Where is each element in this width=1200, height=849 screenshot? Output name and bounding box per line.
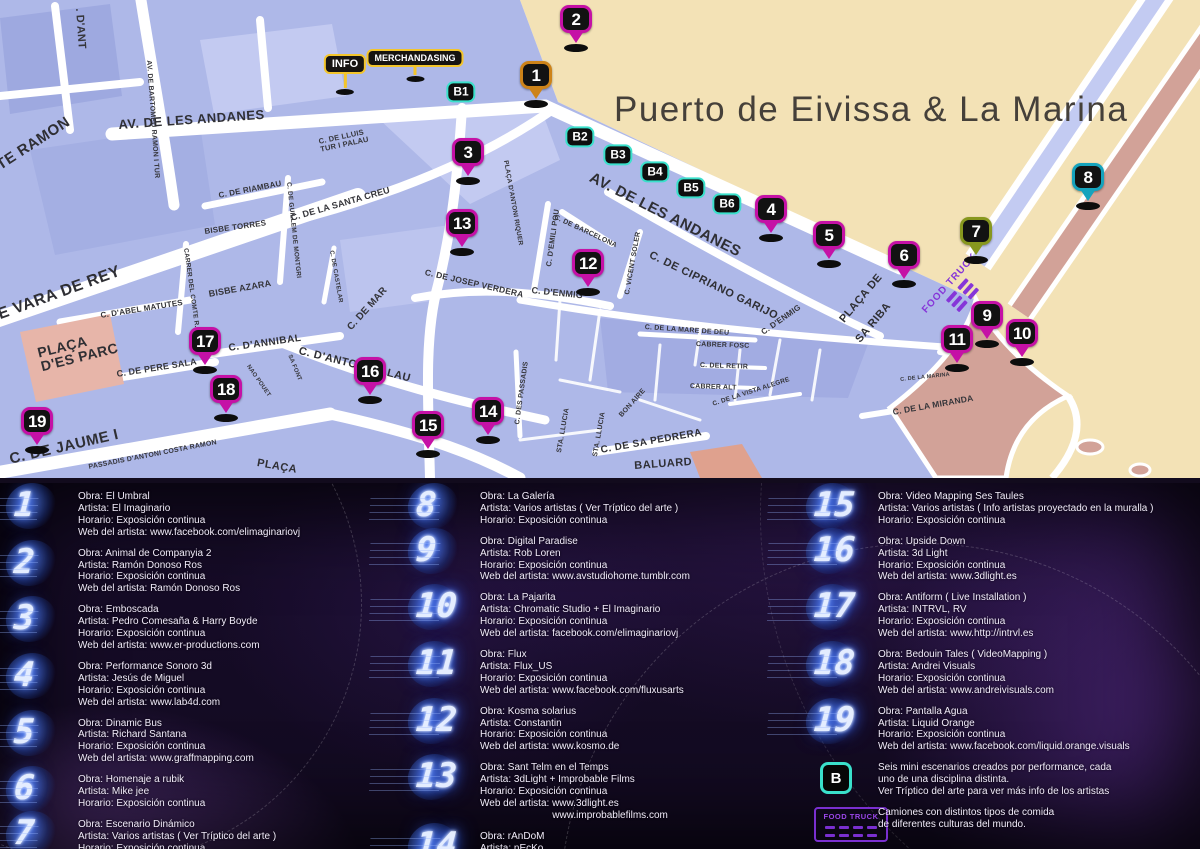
legend-entry: 7Obra: Escenario Dinámico Artista: Vario… [14,817,412,849]
legend-entry: 14Obra: rAnDoM Artista: nEcKo Horario: E… [416,829,808,849]
map-marker-head: 7 [960,217,992,245]
map-marker-13: 13 [446,209,478,256]
legend-entry: 19Obra: Pantalla Agua Artista: Liquid Or… [814,704,1196,754]
map-marker-shadow [576,288,600,296]
map-marker-shadow [892,280,916,288]
legend-entry-number: 11 [415,647,481,679]
number-streaks [0,826,38,848]
number-streaks [0,725,38,747]
legend-badge-slot: FOOD TRUCK [814,805,878,842]
map-marker-tail [896,267,912,279]
number-streaks [767,599,839,621]
legend-entry: FOOD TRUCKCamiones con distintos tipos d… [814,805,1196,842]
map-marker-number: 6 [891,244,917,266]
map-marker-tail [480,423,496,435]
legend-column-2: 8Obra: La Galería Artista: Varios artist… [416,489,808,849]
map-marker-shadow [564,44,588,52]
legend-entry-number: 2 [13,546,79,578]
legend-entry: 10Obra: La Pajarita Artista: Chromatic S… [416,590,808,640]
b-badge-legend: B [820,762,852,794]
street-label: . D'ANT [73,8,87,49]
map-marker-head: 13 [446,209,478,237]
map-marker-tail [29,433,45,445]
map-marker-shadow [214,414,238,422]
legend-entry-number: 6 [13,772,79,804]
poster: . D'ANTAV. DE BARTOMEU RAMON I TURTE RAM… [0,0,1200,849]
map-marker-head: 8 [1072,163,1104,191]
number-streaks [369,543,441,565]
map-marker-tail [968,243,984,255]
map-marker-number: 8 [1075,166,1101,188]
legend-entry-text: Obra: Sant Telm en el Temps Artista: 3dL… [480,760,668,822]
b-badge-B5: B5 [676,177,705,198]
legend-entry: 2Obra: Animal de Companyia 2 Artista: Ra… [14,546,412,596]
map-marker-head: 10 [1006,319,1038,347]
map-marker-shadow [1076,202,1100,210]
legend-entry-text: Obra: Flux Artista: Flux_US Horario: Exp… [480,647,684,697]
map-marker-head: 16 [354,357,386,385]
map-marker-tail [949,351,965,363]
map-marker-shadow [945,364,969,372]
map-marker-number: 15 [415,414,441,436]
sign-post [414,67,417,75]
map-marker-tail [763,221,779,233]
map-marker-head: 6 [888,241,920,269]
map-marker-shadow [975,340,999,348]
map-marker-head: 3 [452,138,484,166]
legend-section: · · · ● 1Obra: El Umbral Artista: El Ima… [0,478,1200,849]
map-marker-head: 17 [189,327,221,355]
legend-entry-text: Obra: Digital Paradise Artista: Rob Lore… [480,534,690,584]
map-marker-tail [197,353,213,365]
map-marker-16: 16 [354,357,386,404]
map-marker-number: 12 [575,252,601,274]
map-marker-18: 18 [210,375,242,422]
map-marker-number: 16 [357,360,383,382]
legend-entry-number: 12 [415,704,481,736]
map-marker-12: 12 [572,249,604,296]
b-badge-B2: B2 [565,126,594,147]
map-marker-number: 1 [523,64,549,86]
map-marker-shadow [358,396,382,404]
legend-entry: 1Obra: El Umbral Artista: El Imaginario … [14,489,412,539]
map-marker-number: 19 [24,410,50,432]
legend-entry: 4Obra: Performance Sonoro 3d Artista: Je… [14,659,412,709]
number-streaks [369,656,441,678]
map-title: Puerto de Eivissa & La Marina [614,90,1128,130]
map-marker-2: 2 [560,5,592,52]
map-marker-tail [1014,345,1030,357]
legend-entry: 5Obra: Dinamic Bus Artista: Richard Sant… [14,716,412,766]
legend-entry-text: Camiones con distintos tipos de comida d… [878,805,1054,831]
number-streaks [0,668,38,690]
dash [825,834,835,837]
map-marker-17: 17 [189,327,221,374]
map-marker-number: 14 [475,400,501,422]
food-truck-badge-label: FOOD TRUCK [824,812,879,821]
map-marker-shadow [193,366,217,374]
legend-entry-text: Obra: rAnDoM Artista: nEcKo Horario: Exp… [480,829,636,849]
legend-entry-text: Obra: Antiform ( Live Installation ) Art… [878,590,1033,640]
legend-entry: 11Obra: Flux Artista: Flux_US Horario: E… [416,647,808,697]
number-streaks [0,555,38,577]
map-marker-15: 15 [412,411,444,458]
map-marker-tail [979,327,995,339]
map-marker-tail [454,235,470,247]
sign-merchandasing: MERCHANDASING [367,49,464,82]
map-marker-tail [1080,189,1096,201]
sign-label: INFO [324,54,366,74]
legend-entry-number: 1 [13,489,79,521]
dash [825,826,835,829]
map-marker-5: 5 [813,221,845,268]
sign-post [344,74,347,88]
legend-entry-number: 8 [415,489,481,521]
food-truck-dashes [825,834,877,837]
legend-entry-number: 5 [13,716,79,748]
map-marker-shadow [416,450,440,458]
map-marker-head: 11 [941,325,973,353]
legend-entry: 15Obra: Video Mapping Ses Taules Artista… [814,489,1196,527]
b-badge-B6: B6 [712,193,741,214]
legend-badge-slot: B [814,760,878,794]
legend-entry: BSeis mini escenarios creados por perfor… [814,760,1196,798]
map-marker-number: 4 [758,198,784,220]
sign-shadow [406,76,424,82]
legend-entry: 8Obra: La Galería Artista: Varios artist… [416,489,808,527]
legend-entry: 12Obra: Kosma solarius Artista: Constant… [416,704,808,754]
map-marker-6: 6 [888,241,920,288]
sign-shadow [336,89,354,95]
food-truck-dashes [825,826,877,829]
map-marker-tail [821,247,837,259]
sign-info: INFO [324,54,366,95]
legend-entry-text: Obra: Emboscada Artista: Pedro Comesaña … [78,602,260,652]
number-streaks [767,498,839,520]
food-truck-badge-legend: FOOD TRUCK [814,807,888,842]
map-marker-shadow [817,260,841,268]
map-marker-number: 9 [974,304,1000,326]
map-marker-8: 8 [1072,163,1104,210]
legend-entry: 13Obra: Sant Telm en el Temps Artista: 3… [416,760,808,822]
number-streaks [0,498,38,520]
map-marker-head: 14 [472,397,504,425]
legend-column-1: 1Obra: El Umbral Artista: El Imaginario … [14,489,412,849]
map-marker-head: 12 [572,249,604,277]
legend-entry: 3Obra: Emboscada Artista: Pedro Comesaña… [14,602,412,652]
b-badge-B3: B3 [603,144,632,165]
legend-entry: 9Obra: Digital Paradise Artista: Rob Lor… [416,534,808,584]
map-marker-number: 5 [816,224,842,246]
legend-entry-text: Obra: Escenario Dinámico Artista: Varios… [78,817,276,849]
legend-entry: 17Obra: Antiform ( Live Installation ) A… [814,590,1196,640]
map-marker-number: 3 [455,141,481,163]
legend-entry-number: 18 [813,647,879,679]
map-marker-number: 2 [563,8,589,30]
dash [867,826,877,829]
number-streaks [369,713,441,735]
dash [853,826,863,829]
number-streaks [369,769,441,791]
map-marker-shadow [25,446,49,454]
map-marker-shadow [456,177,480,185]
legend-entry-text: Obra: Video Mapping Ses Taules Artista: … [878,489,1153,527]
number-streaks [369,838,441,849]
dash [839,826,849,829]
legend-entry-number: 19 [813,704,879,736]
number-streaks [767,656,839,678]
map-marker-10: 10 [1006,319,1038,366]
legend-entry-text: Obra: La Pajarita Artista: Chromatic Stu… [480,590,678,640]
map-marker-11: 11 [941,325,973,372]
dash [853,834,863,837]
legend-entry-text: Obra: Kosma solarius Artista: Constantin… [480,704,619,754]
legend-entry-number: 4 [13,659,79,691]
map-marker-head: 2 [560,5,592,33]
map-marker-head: 5 [813,221,845,249]
map-marker-head: 1 [520,61,552,89]
legend-entry-text: Obra: Performance Sonoro 3d Artista: Jes… [78,659,220,709]
legend-entry: 6Obra: Homenaje a rubik Artista: Mike je… [14,772,412,810]
legend-entry-number: 13 [415,760,481,792]
map-marker-shadow [1010,358,1034,366]
map-marker-number: 11 [944,328,970,350]
dash [867,834,877,837]
legend-entry-number: 14 [415,829,481,849]
map-marker-shadow [450,248,474,256]
number-streaks [767,543,839,565]
sign-label: MERCHANDASING [367,49,464,67]
legend-entry-text: Obra: Pantalla Agua Artista: Liquid Oran… [878,704,1130,754]
legend-entry-text: Seis mini escenarios creados por perform… [878,760,1111,798]
b-badge-B4: B4 [640,161,669,182]
legend-entry-text: Obra: Animal de Companyia 2 Artista: Ram… [78,546,240,596]
legend-entry-number: 10 [415,590,481,622]
map-marker-number: 7 [963,220,989,242]
map-marker-9: 9 [971,301,1003,348]
map-marker-tail [568,31,584,43]
map-marker-head: 18 [210,375,242,403]
map-marker-shadow [524,100,548,108]
map-marker-head: 9 [971,301,1003,329]
map-marker-number: 10 [1009,322,1035,344]
map-marker-tail [580,275,596,287]
map-marker-7: 7 [960,217,992,264]
legend-column-3: 15Obra: Video Mapping Ses Taules Artista… [814,489,1196,849]
number-streaks [369,498,441,520]
map-marker-head: 15 [412,411,444,439]
legend-entry-text: Obra: El Umbral Artista: El Imaginario H… [78,489,300,539]
legend-entry-text: Obra: La Galería Artista: Varios artista… [480,489,678,527]
legend-entry-text: Obra: Bedouin Tales ( VideoMapping ) Art… [878,647,1054,697]
legend-entry-text: Obra: Upside Down Artista: 3d Light Hora… [878,534,1017,584]
map-marker-4: 4 [755,195,787,242]
number-streaks [0,611,38,633]
map-marker-3: 3 [452,138,484,185]
map-marker-head: 4 [755,195,787,223]
legend-entry-number: 9 [415,534,481,566]
map-marker-number: 13 [449,212,475,234]
legend-entry-number: 7 [13,817,79,849]
map-marker-14: 14 [472,397,504,444]
map-marker-shadow [759,234,783,242]
map-marker-shadow [476,436,500,444]
legend-entry-number: 15 [813,489,879,521]
number-streaks [767,713,839,735]
legend-entry-number: 17 [813,590,879,622]
map-marker-tail [528,87,544,99]
map-marker-tail [362,383,378,395]
b-badge-B1: B1 [446,81,475,102]
legend-entry-number: 16 [813,534,879,566]
legend-entry: 16Obra: Upside Down Artista: 3d Light Ho… [814,534,1196,584]
map-marker-shadow [964,256,988,264]
map-marker-19: 19 [21,407,53,454]
map-marker-tail [218,401,234,413]
map-marker-tail [460,164,476,176]
map-section: . D'ANTAV. DE BARTOMEU RAMON I TURTE RAM… [0,0,1200,478]
legend-entry-text: Obra: Homenaje a rubik Artista: Mike jee… [78,772,205,810]
number-streaks [0,781,38,803]
map-marker-tail [420,437,436,449]
number-streaks [369,599,441,621]
legend-entry-text: Obra: Dinamic Bus Artista: Richard Santa… [78,716,254,766]
map-marker-number: 18 [213,378,239,400]
map-marker-1: 1 [520,61,552,108]
dash [839,834,849,837]
map-marker-head: 19 [21,407,53,435]
legend-entry-number: 3 [13,602,79,634]
map-marker-number: 17 [192,330,218,352]
legend-entry: 18Obra: Bedouin Tales ( VideoMapping ) A… [814,647,1196,697]
